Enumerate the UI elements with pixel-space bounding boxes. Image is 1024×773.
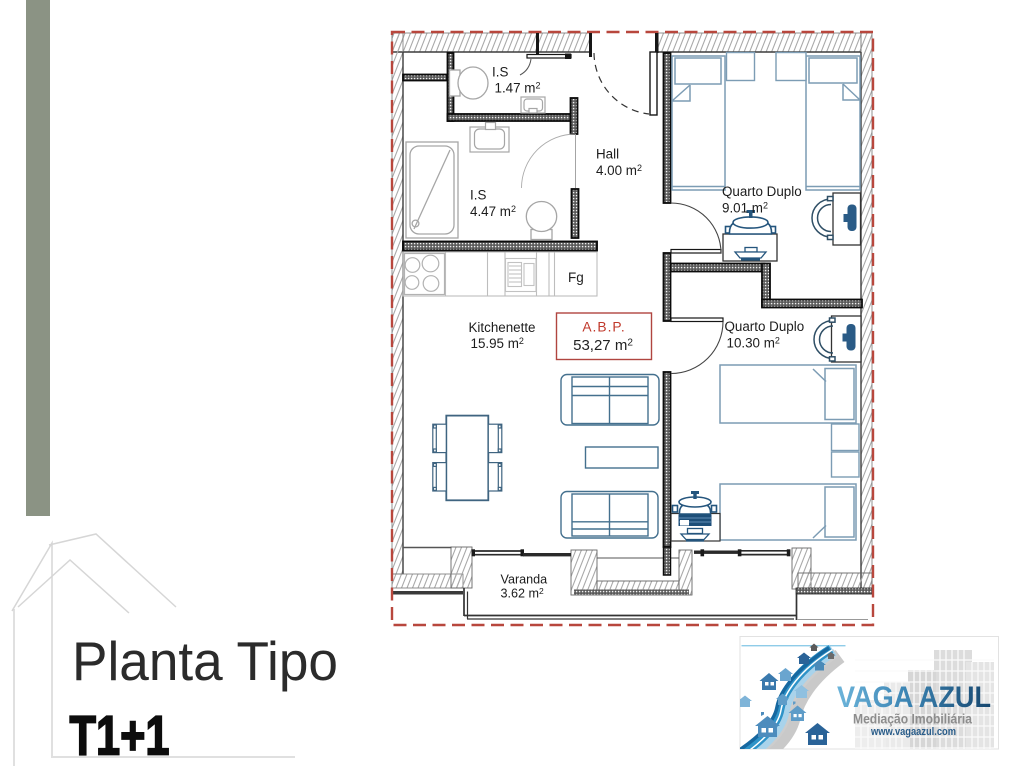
svg-text:VAGA AZUL: VAGA AZUL (837, 681, 991, 714)
svg-text:15.95 m2: 15.95 m2 (471, 336, 524, 351)
svg-text:4.47 m2: 4.47 m2 (470, 204, 516, 219)
svg-text:Fg: Fg (568, 270, 584, 285)
svg-text:I.S: I.S (492, 65, 508, 80)
svg-text:Mediação Imobiliária: Mediação Imobiliária (853, 712, 972, 727)
svg-text:I.S: I.S (470, 188, 486, 203)
svg-text:Kitchenette: Kitchenette (469, 320, 536, 335)
svg-text:Quarto Duplo: Quarto Duplo (722, 184, 802, 199)
svg-text:Varanda: Varanda (501, 573, 548, 587)
svg-text:10.30 m2: 10.30 m2 (727, 336, 780, 351)
svg-text:9.01 m2: 9.01 m2 (722, 201, 768, 216)
svg-text:53,27 m2: 53,27 m2 (573, 337, 633, 354)
svg-text:Hall: Hall (596, 147, 619, 162)
svg-text:3.62 m2: 3.62 m2 (501, 586, 545, 601)
svg-text:Quarto Duplo: Quarto Duplo (725, 319, 805, 334)
svg-text:1.47 m2: 1.47 m2 (495, 81, 541, 96)
svg-text:Planta Tipo: Planta Tipo (72, 630, 338, 692)
svg-text:www.vagaazul.com: www.vagaazul.com (870, 726, 956, 738)
svg-text:A.B.P.: A.B.P. (582, 320, 625, 335)
svg-text:4.00 m2: 4.00 m2 (596, 163, 642, 178)
svg-text:T1+1: T1+1 (70, 704, 170, 767)
